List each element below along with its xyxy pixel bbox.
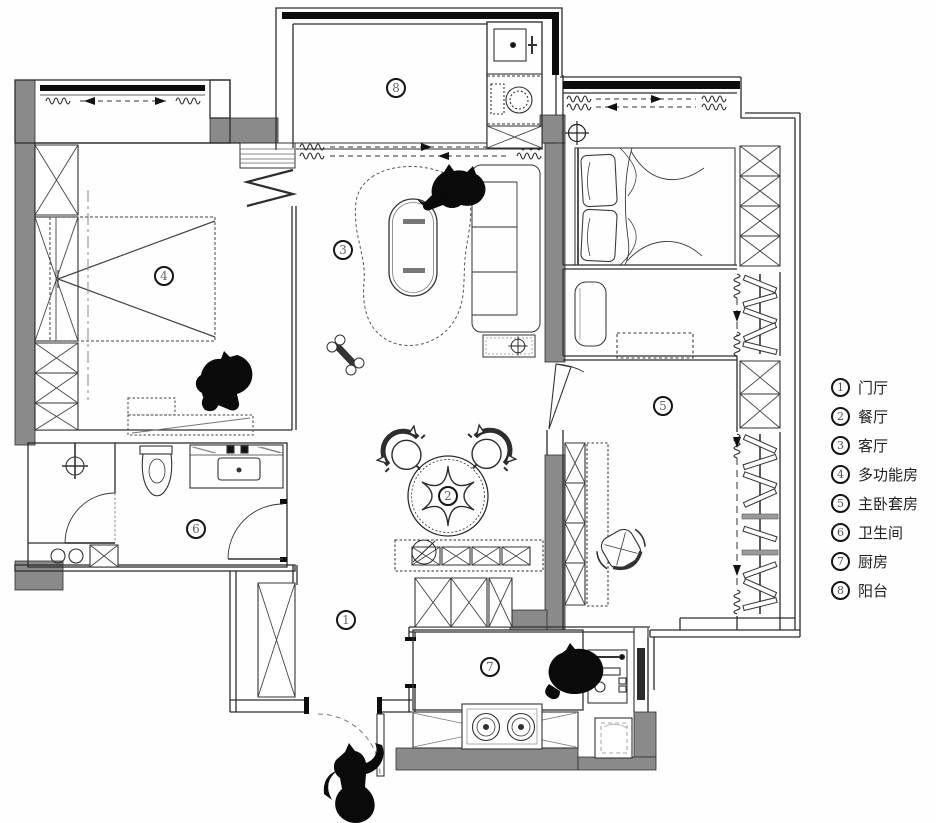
legend-item-multifunction: 4 多功能房 bbox=[831, 464, 918, 485]
window-bands bbox=[40, 12, 740, 714]
toilet-icon bbox=[140, 446, 172, 496]
legend-num: 3 bbox=[831, 436, 850, 455]
cat-on-sofa-icon bbox=[417, 164, 486, 210]
shower-head-icon bbox=[62, 443, 88, 479]
floor-outlet-icon bbox=[508, 336, 527, 355]
legend-label: 阳台 bbox=[858, 580, 888, 601]
room-marker-bathroom: 6 bbox=[186, 519, 206, 539]
legend-item-living: 3 客厅 bbox=[831, 435, 918, 456]
legend-item-master-suite: 5 主卧套房 bbox=[831, 493, 918, 514]
legend-num: 5 bbox=[831, 494, 850, 513]
legend-item-bathroom: 6 卫生间 bbox=[831, 522, 918, 543]
legend-item-dining: 2 餐厅 bbox=[831, 406, 918, 427]
legend-label: 卫生间 bbox=[858, 522, 903, 543]
legend-item-entry: 1 门厅 bbox=[831, 377, 918, 398]
legend-num: 4 bbox=[831, 465, 850, 484]
coffee-table-icon bbox=[389, 199, 437, 296]
room-marker-living: 3 bbox=[333, 240, 353, 260]
ottoman-icon bbox=[617, 333, 693, 358]
cat-at-entry-icon bbox=[324, 743, 384, 823]
balcony-fixtures bbox=[487, 22, 542, 124]
legend-label: 客厅 bbox=[858, 435, 888, 456]
curtain-symbols bbox=[46, 95, 726, 160]
room-marker-entry: 1 bbox=[336, 610, 356, 630]
cat-in-room4-icon bbox=[196, 351, 253, 411]
bathroom bbox=[51, 443, 283, 563]
legend-num: 7 bbox=[831, 552, 850, 571]
floor-plan-page: 1 2 3 4 5 6 7 8 1 门厅 2 餐厅 3 客厅 4 多功能房 5 … bbox=[0, 0, 936, 823]
legend-item-balcony: 8 阳台 bbox=[831, 580, 918, 601]
bench-icon bbox=[575, 282, 606, 346]
legend-num: 2 bbox=[831, 407, 850, 426]
cat-in-kitchen-icon bbox=[545, 643, 603, 699]
office-chair-icon bbox=[591, 522, 652, 578]
room-marker-kitchen: 7 bbox=[480, 657, 500, 677]
kitchen bbox=[413, 630, 645, 758]
bed-icon bbox=[575, 148, 735, 265]
legend-label: 主卧套房 bbox=[858, 493, 918, 514]
legend-label: 餐厅 bbox=[858, 406, 888, 427]
vanity-sink-icon bbox=[190, 445, 283, 488]
floor-plan-drawing bbox=[0, 0, 936, 823]
multifunction-room bbox=[50, 143, 295, 435]
dining-chair-icon bbox=[453, 417, 523, 487]
dressing-desk-icon bbox=[587, 443, 608, 606]
kitchen-sliding-door bbox=[637, 648, 645, 700]
legend: 1 门厅 2 餐厅 3 客厅 4 多功能房 5 主卧套房 6 卫生间 7 厨房 … bbox=[831, 377, 918, 609]
legend-num: 8 bbox=[831, 581, 850, 600]
room-marker-master-suite: 5 bbox=[653, 396, 673, 416]
sliding-door-track bbox=[733, 274, 741, 614]
room-marker-balcony: 8 bbox=[386, 78, 406, 98]
bone-toy-icon bbox=[327, 335, 364, 375]
walkin-closet bbox=[733, 274, 778, 614]
shower-door-icon bbox=[65, 493, 115, 543]
legend-num: 1 bbox=[831, 378, 850, 397]
dining-chair-icon bbox=[370, 418, 440, 488]
room-marker-multifunction: 4 bbox=[154, 266, 174, 286]
washing-machine-icon bbox=[487, 76, 542, 124]
structure-lines bbox=[15, 8, 800, 712]
legend-item-kitchen: 7 厨房 bbox=[831, 551, 918, 572]
ceiling-symbol-icon bbox=[565, 121, 589, 145]
room-marker-dining: 2 bbox=[438, 486, 458, 506]
legend-label: 厨房 bbox=[858, 551, 888, 572]
legend-label: 多功能房 bbox=[858, 464, 918, 485]
legend-num: 6 bbox=[831, 523, 850, 542]
folding-door-icon bbox=[240, 143, 295, 206]
stove-icon bbox=[462, 704, 542, 749]
legend-label: 门厅 bbox=[858, 377, 888, 398]
fridge-icon bbox=[595, 718, 632, 758]
laundry-sink-icon bbox=[487, 22, 542, 74]
suite-door-icon bbox=[549, 364, 584, 429]
bathroom-door-icon bbox=[228, 504, 283, 559]
